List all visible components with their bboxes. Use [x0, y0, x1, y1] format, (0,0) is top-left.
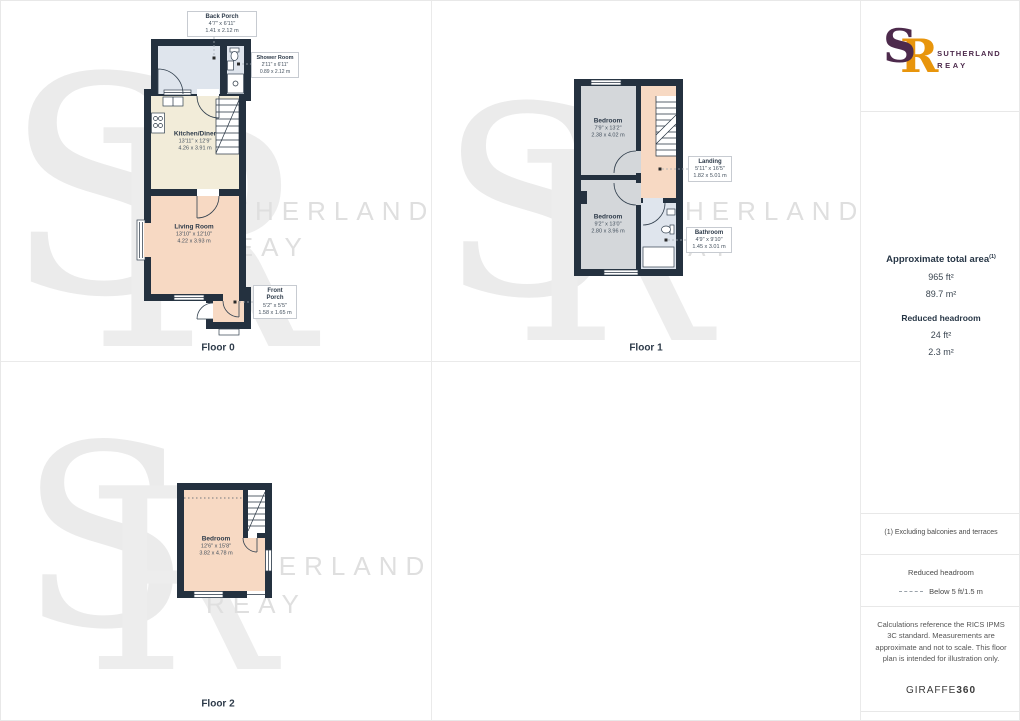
room-label-bathroom: Bathroom 4'9" x 9'10" 1.45 x 3.01 m [686, 227, 732, 253]
stove-icon [152, 113, 165, 133]
room-living [151, 196, 239, 294]
dashed-line-sample [899, 591, 923, 592]
floor0-stairs-icon [216, 99, 239, 154]
reduced-headroom-ft: 24 ft² [861, 330, 1020, 340]
sidebar-divider [861, 606, 1020, 607]
sink-icon [667, 209, 675, 215]
legend-value: Below 5 ft/1.5 m [929, 587, 983, 596]
floor0-label: Floor 0 [201, 343, 234, 354]
sidebar-divider [861, 111, 1020, 112]
shower-icon [228, 74, 244, 93]
agency-logo: R S SUTHERLAND REAY [861, 25, 1020, 83]
room-label-living-room: Living Room 13'10" x 12'10" 4.22 x 3.93 … [174, 224, 213, 245]
total-area-m: 89.7 m² [861, 289, 1020, 299]
sink-icon [228, 61, 234, 70]
reduced-headroom-legend: Reduced headroom Below 5 ft/1.5 m [861, 568, 1020, 596]
room-label-front-porch: Front Porch 5'2" x 5'5" 1.58 x 1.65 m [253, 285, 297, 319]
room-label-shower-room: Shower Room 2'11" x 6'11" 0.89 x 2.12 m [251, 52, 299, 78]
room-label-landing: Landing 5'11" x 16'5" 1.82 x 5.01 m [688, 156, 732, 182]
info-sidebar: R S SUTHERLAND REAY Approximate total ar… [861, 1, 1020, 721]
floor1-label: Floor 1 [629, 343, 662, 354]
floor2-label: Floor 2 [201, 699, 234, 710]
room-label-kitchen-diner: Kitchen/Diner 13'11" x 12'9" 4.26 x 3.91… [174, 131, 216, 152]
bay-window [137, 220, 145, 260]
room-label-bedroom-bottom: Bedroom 9'2" x 13'0" 2.80 x 3.96 m [591, 214, 624, 235]
wall-notch [581, 191, 587, 204]
room-back-porch [158, 46, 220, 94]
floor1-plan [431, 1, 861, 361]
total-area-ft: 965 ft² [861, 272, 1020, 282]
agency-monogram: R S [881, 25, 937, 83]
legend-title: Reduced headroom [861, 568, 1020, 577]
area-summary: Approximate total area(1) 965 ft² 89.7 m… [861, 254, 1020, 357]
sidebar-divider [861, 513, 1020, 514]
front-step [219, 329, 239, 335]
floor1-stairs-icon [656, 96, 676, 156]
floor0-plan [1, 1, 431, 361]
agency-name: SUTHERLAND REAY [937, 49, 1001, 83]
room-label-bedroom-floor2: Bedroom 12'6" x 15'8" 3.82 x 4.78 m [199, 536, 232, 557]
total-area-heading: Approximate total area(1) [861, 254, 1020, 265]
floorplan-page: S R SUTHERLAND REAY S R SUTHERLAND REAY … [0, 0, 1020, 721]
giraffe360-brand: GIRAFFE360 [861, 685, 1020, 696]
room-label-bedroom-top: Bedroom 7'9" x 13'2" 2.38 x 4.02 m [591, 118, 624, 139]
sidebar-divider [861, 554, 1020, 555]
room-label-back-porch: Back Porch 4'7" x 6'11" 1.41 x 2.12 m [187, 11, 257, 37]
reduced-headroom-heading: Reduced headroom [861, 313, 1020, 323]
logo-letter-s: S [883, 23, 916, 69]
reduced-headroom-m: 2.3 m² [861, 347, 1020, 357]
footnote: (1) Excluding balconies and terraces [861, 529, 1020, 536]
sidebar-divider [861, 711, 1020, 712]
bathtub-icon [643, 247, 674, 267]
disclaimer-text: Calculations reference the RICS IPMS 3C … [875, 619, 1007, 664]
